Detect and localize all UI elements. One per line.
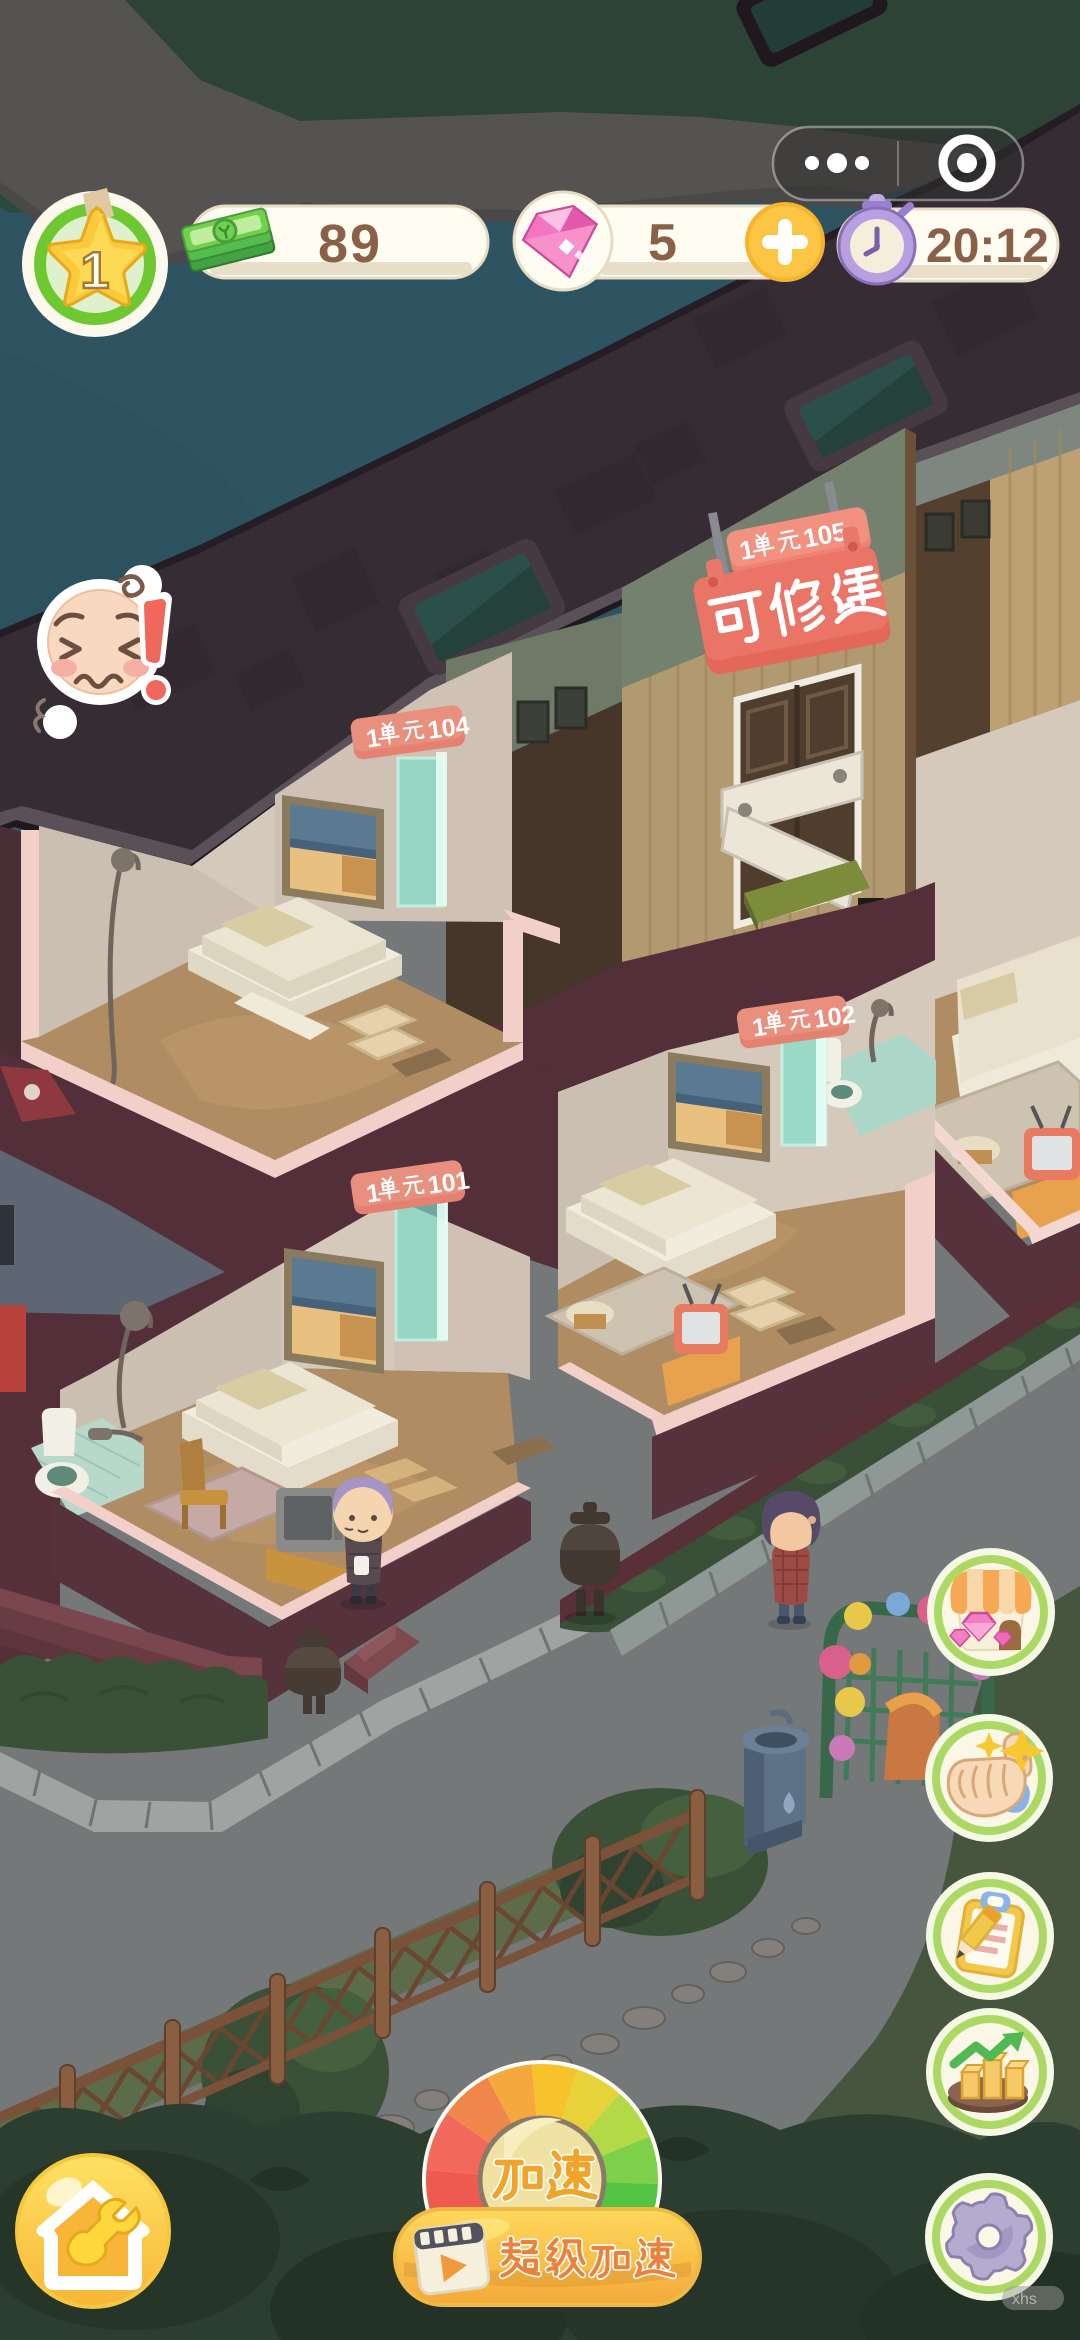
- svg-text:5: 5: [648, 214, 677, 272]
- svg-text:20:12: 20:12: [926, 220, 1049, 273]
- svg-text:xhs: xhs: [1012, 2291, 1037, 2308]
- svg-text:101: 101: [426, 1166, 471, 1200]
- svg-text:89: 89: [318, 214, 382, 274]
- svg-text:104: 104: [426, 711, 471, 745]
- svg-text:1: 1: [81, 242, 110, 300]
- svg-text:102: 102: [812, 1000, 857, 1034]
